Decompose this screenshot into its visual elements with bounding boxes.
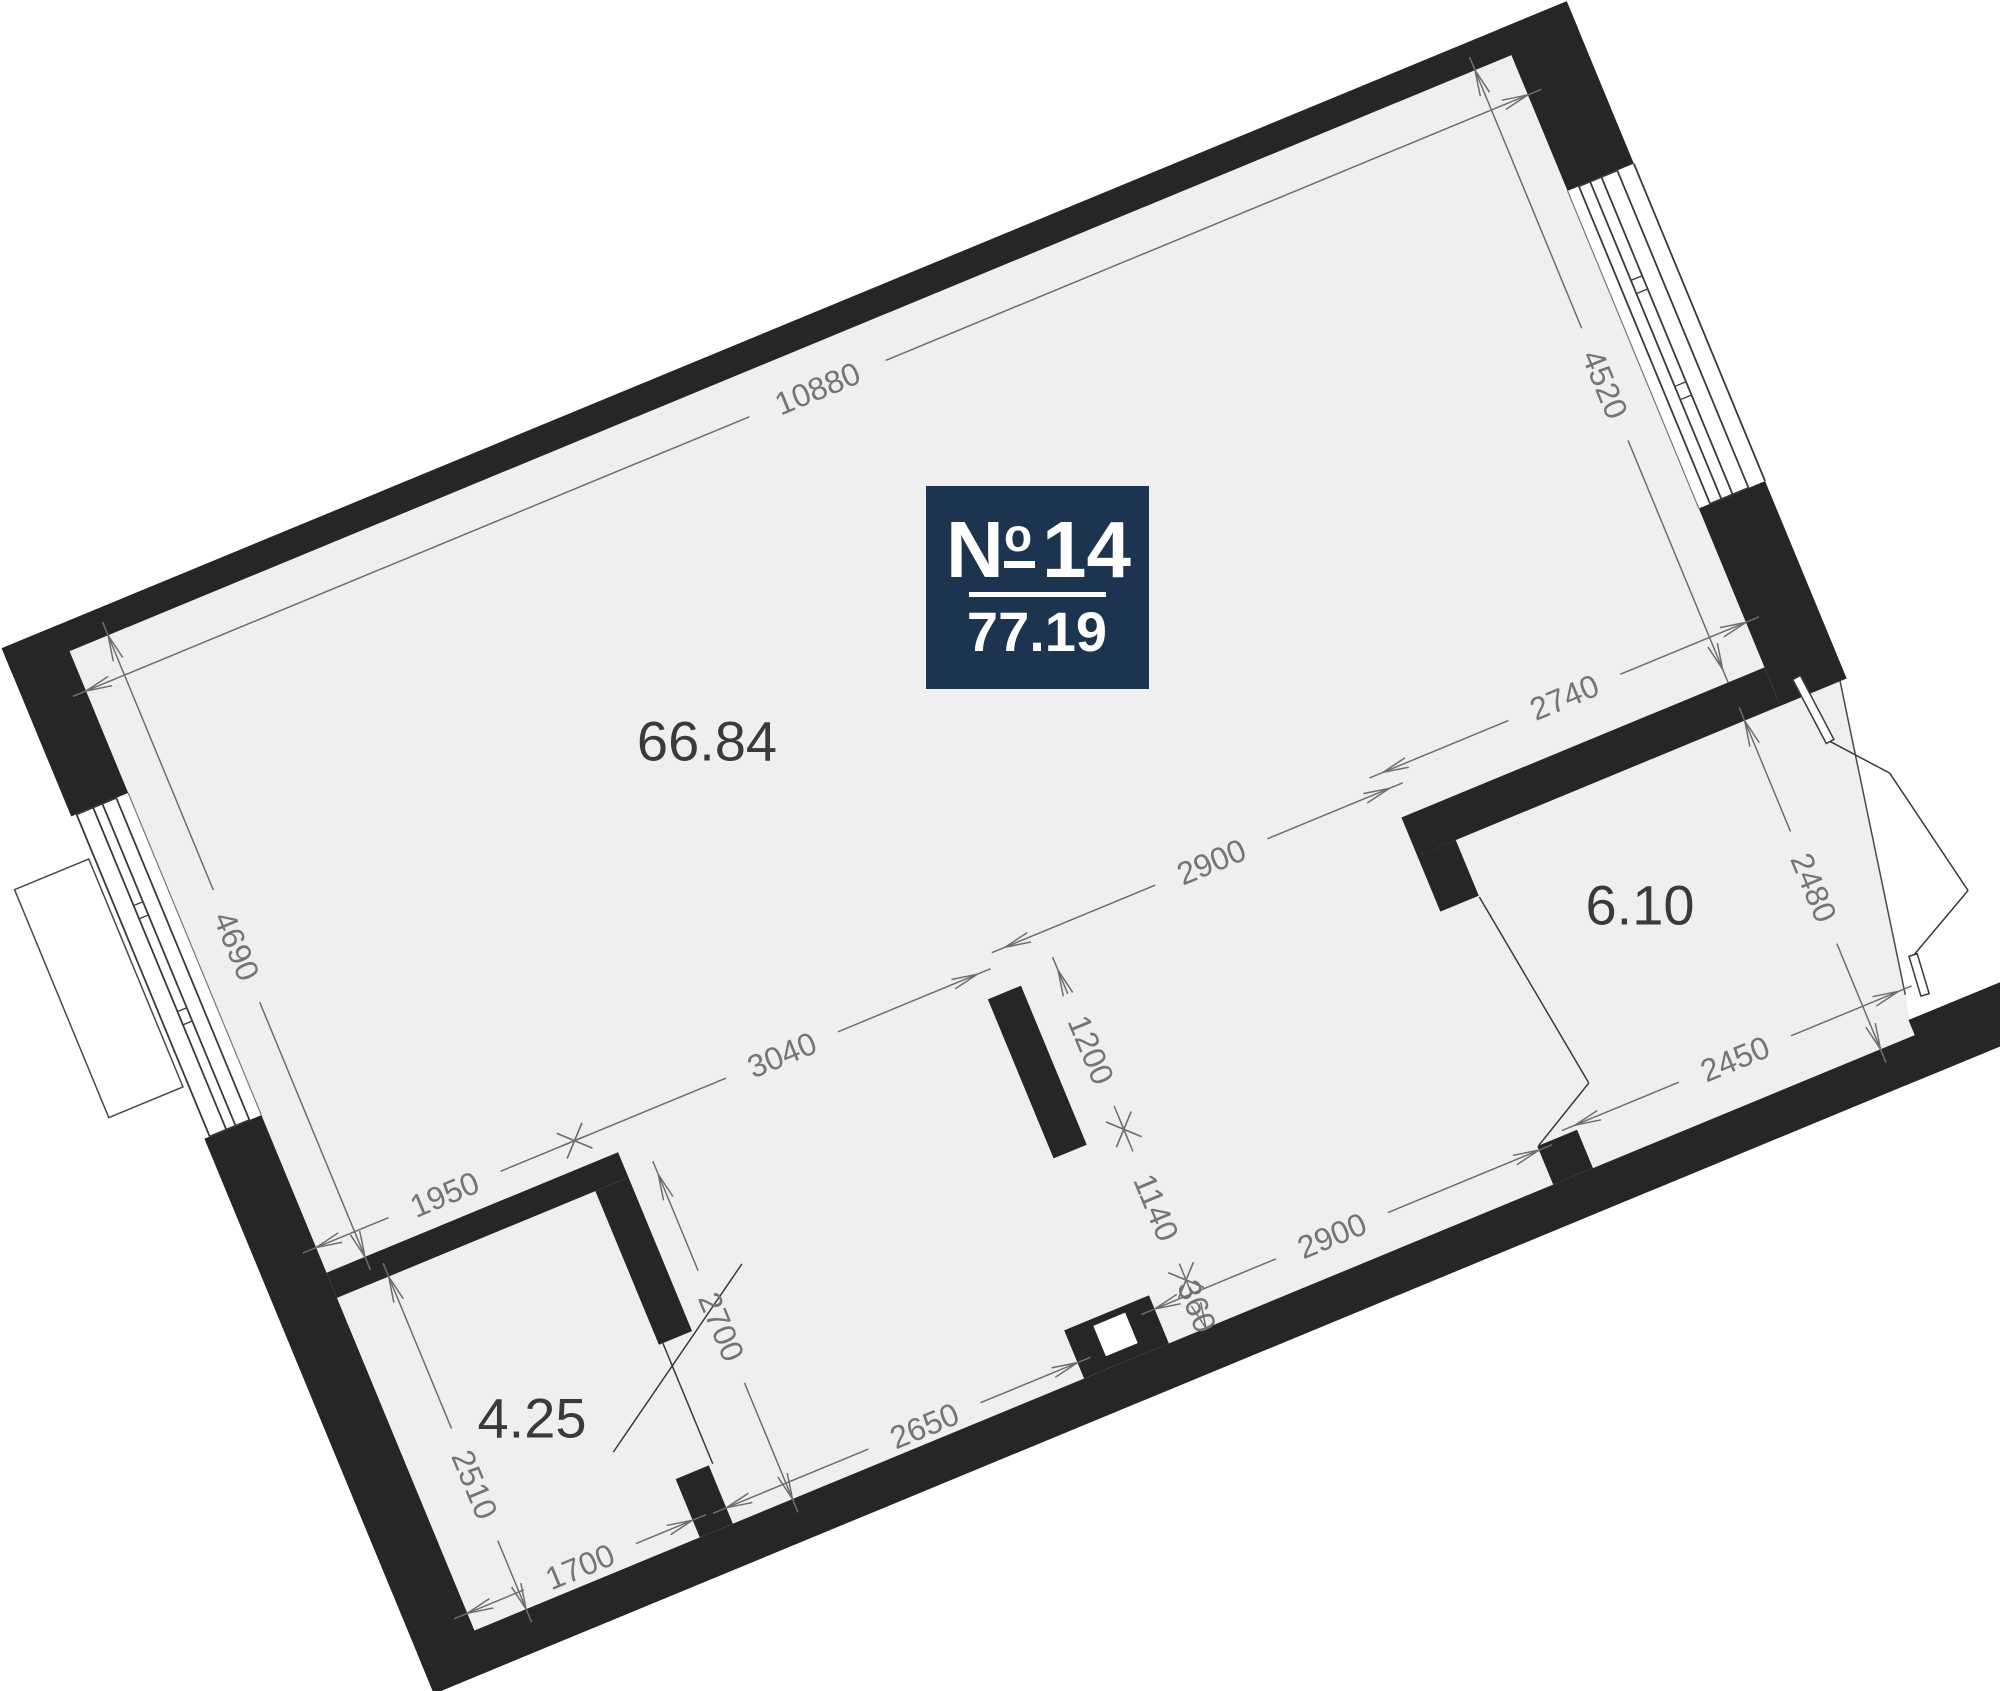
svg-text:77.19: 77.19 xyxy=(967,600,1107,663)
svg-text:14: 14 xyxy=(1042,505,1131,594)
svg-text:N: N xyxy=(946,505,1004,594)
svg-text:4.25: 4.25 xyxy=(478,1387,587,1450)
svg-text:66.84: 66.84 xyxy=(637,710,777,773)
svg-text:o: o xyxy=(1004,509,1032,561)
svg-text:6.10: 6.10 xyxy=(1586,874,1695,937)
